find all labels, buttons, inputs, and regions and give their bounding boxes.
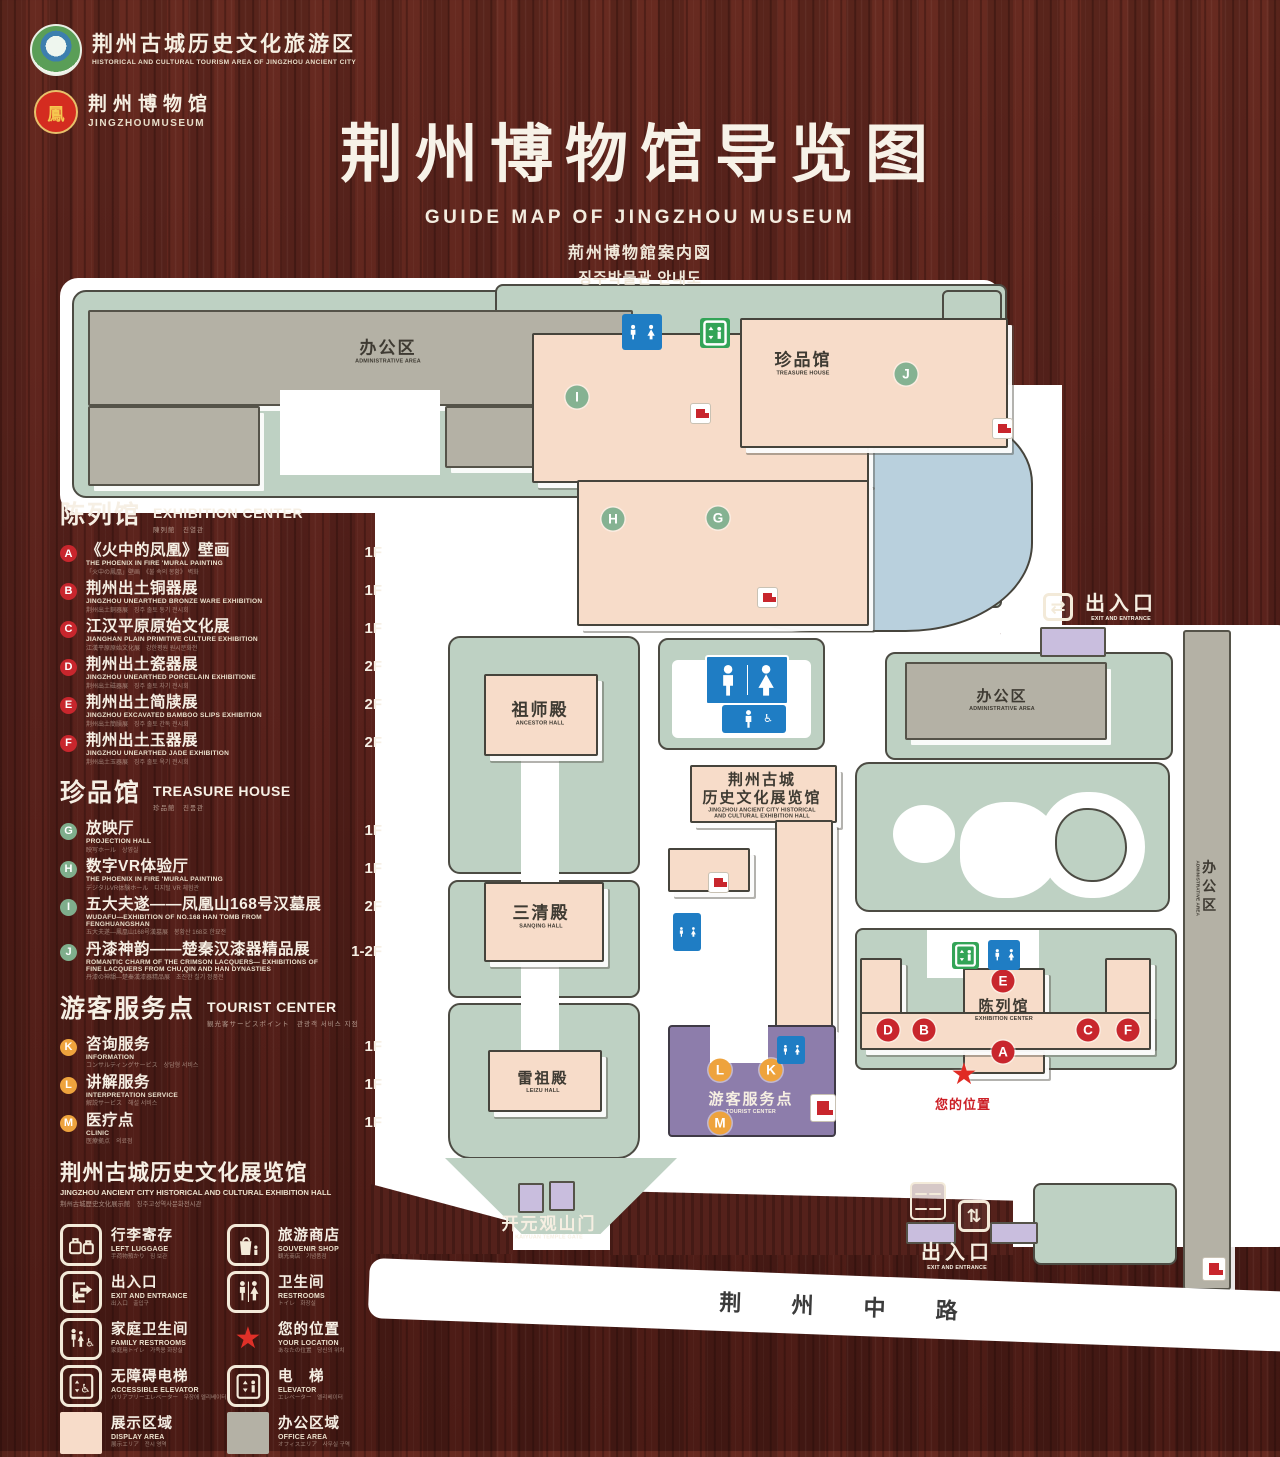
history-hall-note-zh: 荆州古城历史文化展览馆: [60, 1162, 382, 1186]
restroom-icon: [705, 655, 789, 705]
exhibit-item-J: J 丹漆神韵——楚秦汉漆器精品展 ROMANTIC CHARM OF THE C…: [60, 942, 382, 982]
legend-item: ♿无障碍电梯 ACCESSIBLE ELEVATOR バリアフリーエレベーター …: [60, 1363, 227, 1410]
elevator-icon: [952, 942, 979, 969]
map-label-line: ADMINISTRATIVE AREA: [969, 706, 1035, 712]
item-name-en: THE PHOENIX IN FIRE 'MURAL PAINTING: [86, 561, 321, 568]
item-letter-badge: I: [60, 899, 77, 916]
item-floor: 2F: [350, 733, 382, 751]
map-label-line: SANQING HALL: [513, 924, 570, 930]
legend-en: ACCESSIBLE ELEVATOR: [111, 1387, 226, 1394]
legend-grid: 行李寄存 LEFT LUGGAGE 手荷物預かり 짐 보관旅游商店 SOUVEN…: [60, 1222, 382, 1457]
item-name-zh: 咨询服务: [86, 1037, 350, 1053]
section-title-sub: 珍品館 진품관: [153, 802, 291, 812]
elevator-icon: [700, 318, 730, 348]
map-label-exit-ne: 出入口EXIT AND ENTRANCE: [1085, 592, 1157, 622]
item-letter-badge: M: [60, 1115, 77, 1132]
map-label-treasure: 珍品馆TREASURE HOUSE: [775, 351, 832, 378]
history-hall-note-en: JINGZHOU ANCIENT CITY HISTORICAL AND CUL…: [60, 1189, 382, 1197]
section-title-en: EXHIBITION CENTER: [153, 503, 303, 520]
legend-en: LEFT LUGGAGE: [111, 1246, 173, 1253]
item-name-sub: 荆州出土玉器展 징주 출토 옥기 전시회: [86, 760, 321, 766]
map-label-line: 荆州古城: [702, 772, 821, 790]
item-name-en: JIANGHAN PLAIN PRIMITIVE CULTURE EXHIBIT…: [86, 637, 321, 644]
legend-en: FAMILY RESTROOMS: [111, 1340, 189, 1347]
legend-item: 旅游商店 SOUVENIR SHOP 観光商店 기념품점: [227, 1222, 382, 1269]
tourism-area-emblem-icon: [30, 24, 82, 76]
section-title-zh: 陈列馆: [60, 503, 141, 528]
map-marker-I: I: [566, 386, 589, 409]
map-label-kaiyuan: 开元观山门KAIYUAN TEMPLE GATE: [502, 1215, 597, 1242]
map-label-line: 办公区: [969, 688, 1035, 706]
section-header-2: 游客服务点 TOURIST CENTER 観光客サービスポイント 관광객 서비스…: [60, 997, 382, 1028]
exit-entrance-icon: ⇅: [958, 1200, 990, 1232]
map-label-exhibition: 陈列馆EXHIBITION CENTER: [975, 998, 1033, 1022]
left-luggage-icon: [810, 1094, 836, 1122]
legend-sub: 家庭用トイレ 가족용 화장실: [111, 1349, 189, 1355]
map-label-history-hall: 荆州古城历史文化展览馆JINGZHOU ANCIENT CITY HISTORI…: [702, 772, 821, 821]
item-name-sub: 映写ホール 상영실: [86, 848, 321, 854]
legend-zh: 家庭卫生间: [111, 1323, 189, 1338]
exhibit-sections: 陈列馆 EXHIBITION CENTER 陳列館 진열관A 《火中的凤凰》壁画…: [60, 503, 382, 1146]
item-letter-badge: G: [60, 823, 77, 840]
exhibit-item-D: D 荆州出土瓷器展 JINGZHOU UNEARTHED PORCELAIN E…: [60, 657, 382, 690]
map-label-line: KAIYUAN TEMPLE GATE: [502, 1235, 597, 1241]
item-floor: 1F: [350, 543, 382, 561]
legend-sub: エレベーター 엘리베이터: [278, 1396, 343, 1402]
legend-zh: 旅游商店: [278, 1229, 340, 1244]
item-name-zh: 五大夫遂——凤凰山168号汉墓展: [86, 897, 350, 913]
legend-item: 卫生间 RESTROOMS トイレ 화장실: [227, 1269, 382, 1316]
item-name-zh: 《火中的凤凰》壁画: [86, 543, 350, 559]
item-name-en: JINGZHOU UNEARTHED BRONZE WARE EXHIBITIO…: [86, 599, 321, 606]
history-hall-east-wing: [775, 820, 833, 1032]
legend-sub: 展示エリア 전시 영역: [111, 1443, 173, 1449]
item-floor: 1F: [350, 1113, 382, 1131]
kaiyuan-gate-pillar-west: [518, 1183, 544, 1213]
exhibit-item-K: K 咨询服务 INFORMATION コンサルティングサービス 상담형 서비스 …: [60, 1037, 382, 1070]
map-label-line: 出入口: [921, 1241, 993, 1265]
office-area-swatch: [227, 1412, 269, 1454]
legend-zh: 行李寄存: [111, 1229, 173, 1244]
exhibit-item-F: F 荆州出土玉器展 JINGZHOU UNEARTHED JADE EXHIBI…: [60, 733, 382, 766]
phoenix-emblem-icon: 鳳: [34, 90, 78, 134]
item-name-zh: 荆州出土瓷器展: [86, 657, 350, 673]
treasure-house-east: [740, 318, 1008, 448]
item-name-en: JINGZHOU EXCAVATED BAMBOO SLIPS EXHIBITI…: [86, 713, 321, 720]
map-marker-J: J: [895, 363, 918, 386]
item-name-en: ROMANTIC CHARM OF THE CRIMSON LACQUERS— …: [86, 960, 321, 974]
gate-building-northeast: [1040, 627, 1106, 657]
accessible-elevator-icon: ♿: [60, 1365, 102, 1407]
item-letter-badge: J: [60, 944, 77, 961]
item-letter-badge: L: [60, 1077, 77, 1094]
red-facility-icon: [992, 418, 1013, 439]
item-name-zh: 丹漆神韵——楚秦汉漆器精品展: [86, 942, 350, 958]
map-marker-E: E: [992, 970, 1015, 993]
item-name-sub: 荆州出土簡牘展 징주 출토 간독 전시회: [86, 722, 321, 728]
map-label-line: EXIT AND ENTRANCE: [921, 1265, 993, 1271]
legend-column: 陈列馆 EXHIBITION CENTER 陳列館 진열관A 《火中的凤凰》壁画…: [60, 503, 382, 1457]
legend-en: SOUVENIR SHOP: [278, 1246, 340, 1253]
green-southeast: [1033, 1183, 1177, 1265]
your-location-star-icon: ★: [951, 1060, 978, 1090]
item-letter-badge: B: [60, 583, 77, 600]
tourism-area-logo: 荆州古城历史文化旅游区 HISTORICAL AND CULTURAL TOUR…: [30, 24, 356, 76]
map-marker-G: G: [707, 507, 730, 530]
tourism-area-subtitle: HISTORICAL AND CULTURAL TOURISM AREA OF …: [92, 59, 356, 66]
page-title-ja: 荊州博物館案内図: [0, 239, 1280, 263]
map-label-line: EXIT AND ENTRANCE: [1085, 616, 1157, 622]
exhibit-item-H: H 数字VR体验厅 THE PHOENIX IN FIRE 'MURAL PAI…: [60, 859, 382, 892]
map-label-line: ADMINISTRATIVE AREA: [1195, 860, 1200, 917]
item-name-en: PROJECTION HALL: [86, 839, 321, 846]
item-name-en: CLINIC: [86, 1131, 321, 1138]
legend-item: ★您的位置 YOUR LOCATION あなたの位置 당신의 위치: [227, 1316, 382, 1363]
legend-en: YOUR LOCATION: [278, 1340, 344, 1347]
map-label-line: ANCESTOR HALL: [512, 721, 569, 727]
map-label-leizu: 雷祖殿LEIZU HALL: [517, 1070, 568, 1094]
item-floor: 1F: [350, 1037, 382, 1055]
tourist-center-notch: [710, 1025, 768, 1063]
your-location-icon: ★: [227, 1318, 269, 1360]
item-floor: 1F: [350, 581, 382, 599]
map-marker-M: M: [709, 1112, 732, 1135]
road-label: 荆 州 中 路: [697, 1284, 980, 1326]
family-restroom-icon: [910, 1182, 946, 1220]
legend-zh: 出入口: [111, 1276, 188, 1291]
map-label-your-location: 您的位置: [935, 1097, 991, 1113]
item-name-sub: デジタルVR体験ホール 디지털 VR 체험관: [86, 886, 321, 892]
legend-en: ELEVATOR: [278, 1387, 343, 1394]
red-facility-icon: [757, 587, 778, 608]
legend-sub: オフィスエリア 사무실 구역: [278, 1443, 350, 1449]
legend-sub: 観光商店 기념품점: [278, 1255, 340, 1261]
item-letter-badge: D: [60, 659, 77, 676]
map-label-line: 出入口: [1085, 592, 1157, 616]
map-marker-C: C: [1077, 1019, 1100, 1042]
elevator-icon: [227, 1365, 269, 1407]
legend-item: 行李寄存 LEFT LUGGAGE 手荷物預かり 짐 보관: [60, 1222, 227, 1269]
section-header-0: 陈列馆 EXHIBITION CENTER 陳列館 진열관: [60, 503, 382, 534]
legend-sub: 出入口 출입구: [111, 1302, 188, 1308]
museum-logo: 鳳 荆州博物馆 JINGZHOUMUSEUM: [34, 90, 213, 134]
phoenix-glyph: 鳳: [48, 100, 65, 125]
exhibit-item-E: E 荆州出土简牍展 JINGZHOU EXCAVATED BAMBOO SLIP…: [60, 695, 382, 728]
tourism-area-title: 荆州古城历史文化旅游区: [92, 34, 356, 56]
item-name-sub: 五大夫遂—鳳凰山168号漢墓展 봉황산 168호 한묘전: [86, 930, 321, 936]
restrooms-icon: [227, 1271, 269, 1313]
item-floor: 1-2F: [350, 942, 382, 960]
exhibit-item-B: B 荆州出土铜器展 JINGZHOU UNEARTHED BRONZE WARE…: [60, 581, 382, 614]
restroom-icon: [673, 913, 701, 951]
item-name-sub: 丹漆の神韻—楚秦漢漆器精品展 초진한 칠기 정품전: [86, 975, 321, 981]
legend-zh: 电 梯: [278, 1370, 343, 1385]
legend-sub: あなたの位置 당신의 위치: [278, 1349, 344, 1355]
history-hall-note: 荆州古城历史文化展览馆 JINGZHOU ANCIENT CITY HISTOR…: [60, 1162, 382, 1208]
map-label-line: AND CULTURAL EXHIBITION HALL: [702, 814, 821, 820]
item-name-sub: 解説サービス 해설 서비스: [86, 1101, 321, 1107]
item-name-en: JINGZHOU UNEARTHED JADE EXHIBITION: [86, 751, 321, 758]
item-name-zh: 荆州出土玉器展: [86, 733, 350, 749]
map-marker-A: A: [992, 1041, 1015, 1064]
souvenir-shop-icon: [227, 1224, 269, 1266]
museum-guide-sign: { "header": { "logo1": {"title": "荆州古城历史…: [0, 0, 1280, 1451]
legend-item: 展示区域 DISPLAY AREA 展示エリア 전시 영역: [60, 1410, 227, 1457]
red-facility-icon: [708, 872, 729, 893]
legend-zh: 您的位置: [278, 1323, 344, 1338]
item-name-sub: 荆州出土銅器展 징주 출토 동기 전시회: [86, 608, 321, 614]
exhibit-item-A: A 《火中的凤凰》壁画 THE PHOENIX IN FIRE 'MURAL P…: [60, 543, 382, 576]
map-label-line: 三清殿: [513, 904, 570, 924]
map-label-line: 办公区: [355, 339, 421, 359]
svg-text:♿: ♿: [80, 1381, 91, 1395]
legend-zh: 无障碍电梯: [111, 1370, 226, 1385]
item-name-zh: 放映厅: [86, 821, 350, 837]
legend-en: DISPLAY AREA: [111, 1434, 173, 1441]
item-name-sub: 荆州出土磁器展 징주 출토 자기 전시회: [86, 684, 321, 690]
exhibit-item-I: I 五大夫遂——凤凰山168号汉墓展 WUDAFU—EXHIBITION OF …: [60, 897, 382, 937]
svg-text:♿: ♿: [85, 1337, 95, 1349]
left-luggage-icon: [60, 1224, 102, 1266]
map-label-line: 陈列馆: [975, 998, 1033, 1016]
map-label-line: 办公区: [1200, 860, 1217, 917]
legend-en: EXIT AND ENTRANCE: [111, 1293, 188, 1300]
section-title-sub: 陳列館 진열관: [153, 524, 303, 534]
map-marker-F: F: [1117, 1019, 1140, 1042]
item-name-zh: 荆州出土铜器展: [86, 581, 350, 597]
item-name-zh: 数字VR体验厅: [86, 859, 350, 875]
item-name-sub: 江漢平原原始文化展 강한평원 원시문화전: [86, 646, 321, 652]
item-name-en: JINGZHOU UNEARTHED PORCELAIN EXHIBITIONE: [86, 675, 321, 682]
item-name-zh: 荆州出土简牍展: [86, 695, 350, 711]
display-area-swatch: [60, 1412, 102, 1454]
section-title-zh: 珍品馆: [60, 781, 141, 806]
map-label-line: TREASURE HOUSE: [775, 371, 832, 377]
pond-west: [893, 805, 955, 863]
item-floor: 1F: [350, 1075, 382, 1093]
map-label-ancestor: 祖师殿ANCESTOR HALL: [512, 701, 569, 728]
item-name-en: INTERPRETATION SERVICE: [86, 1093, 321, 1100]
exhibit-item-M: M 医疗点 CLINIC 医療拠点 의료점 1F: [60, 1113, 382, 1146]
exit-entrance-icon: [60, 1271, 102, 1313]
map-label-line: EXHIBITION CENTER: [975, 1016, 1033, 1022]
map-label-admin-strip: 办公区ADMINISTRATIVE AREA: [1195, 860, 1217, 917]
map-label-line: ADMINISTRATIVE AREA: [355, 359, 421, 365]
map-label-line: 您的位置: [935, 1097, 991, 1113]
item-name-en: WUDAFU—EXHIBITION OF NO.168 HAN TOMB FRO…: [86, 915, 321, 929]
legend-item: 办公区域 OFFICE AREA オフィスエリア 사무실 구역: [227, 1410, 382, 1457]
section-title-en: TOURIST CENTER: [207, 997, 358, 1014]
legend-item: 电 梯 ELEVATOR エレベーター 엘리베이터: [227, 1363, 382, 1410]
map-marker-H: H: [602, 508, 625, 531]
item-floor: 2F: [350, 897, 382, 915]
item-floor: 1F: [350, 859, 382, 877]
item-letter-badge: H: [60, 861, 77, 878]
map-label-line: LEIZU HALL: [517, 1088, 568, 1094]
item-letter-badge: C: [60, 621, 77, 638]
legend-sub: 手荷物預かり 짐 보관: [111, 1255, 173, 1261]
section-title-sub: 観光客サービスポイント 관광객 서비스 지점: [207, 1018, 358, 1028]
item-name-en: THE PHOENIX IN FIRE 'MURAL PAINTING: [86, 877, 321, 884]
kaiyuan-gate-pillar-east: [549, 1181, 575, 1211]
restroom-icon: [622, 314, 662, 350]
map-label-admin-e: 办公区ADMINISTRATIVE AREA: [969, 688, 1035, 712]
museum-logo-title: 荆州博物馆: [88, 95, 213, 115]
item-letter-badge: K: [60, 1039, 77, 1056]
item-floor: 1F: [350, 619, 382, 637]
item-floor: 2F: [350, 695, 382, 713]
map-marker-B: B: [913, 1019, 936, 1042]
treasure-house-south: [577, 480, 869, 626]
map-label-admin-nw: 办公区ADMINISTRATIVE AREA: [355, 339, 421, 366]
item-name-sub: コンサルティングサービス 상담형 서비스: [86, 1063, 321, 1069]
pond-east-island: [1055, 808, 1127, 882]
jingzhou-middle-road: 荆 州 中 路: [368, 1258, 1280, 1352]
page-title-ko: 징주박물관 안내도: [0, 267, 1280, 288]
courtyard-northwest: [280, 390, 440, 475]
legend-zh: 卫生间: [278, 1276, 325, 1291]
legend-en: RESTROOMS: [278, 1293, 325, 1300]
legend-sub: バリアフリーエレベーター 무장애 엘리베이터: [111, 1396, 226, 1402]
accessible-restroom-icon: ♿: [722, 705, 786, 733]
restroom-icon: [988, 940, 1020, 970]
museum-logo-subtitle: JINGZHOUMUSEUM: [88, 118, 213, 129]
item-name-sub: 「火中の鳳凰」壁画 《불 속의 봉황》 벽화: [86, 570, 321, 576]
legend-item: 出入口 EXIT AND ENTRANCE 出入口 출입구: [60, 1269, 227, 1316]
map-label-line: 雷祖殿: [517, 1070, 568, 1088]
map-label-line: 祖师殿: [512, 701, 569, 721]
map-label-exit-s: 出入口EXIT AND ENTRANCE: [921, 1241, 993, 1271]
office-strip-east: [1183, 630, 1231, 1290]
legend-zh: 展示区域: [111, 1417, 173, 1432]
restroom-icon: [777, 1036, 805, 1064]
item-name-zh: 医疗点: [86, 1113, 350, 1129]
family-restrooms-icon: ♿: [60, 1318, 102, 1360]
page-title-en: GUIDE MAP OF JINGZHOU MUSEUM: [0, 207, 1280, 229]
gate-building-south-east: [990, 1222, 1038, 1244]
red-facility-icon: [690, 403, 711, 424]
legend-zh: 办公区域: [278, 1417, 350, 1432]
item-name-sub: 医療拠点 의료점: [86, 1139, 321, 1145]
item-name-zh: 讲解服务: [86, 1075, 350, 1091]
history-hall-note-sub: 荆州古城歴史文化展示館 징주고성역사문화전시관: [60, 1201, 382, 1208]
exit-entrance-icon: ⇄: [1043, 593, 1073, 621]
item-letter-badge: E: [60, 697, 77, 714]
legend-en: OFFICE AREA: [278, 1434, 350, 1441]
red-facility-icon: [1202, 1257, 1226, 1281]
map-label-line: 游客服务点: [708, 1091, 793, 1109]
map-label-line: 珍品馆: [775, 351, 832, 371]
item-letter-badge: A: [60, 545, 77, 562]
admin-nw-building-b: [88, 406, 260, 486]
map-marker-D: D: [877, 1019, 900, 1042]
item-floor: 1F: [350, 821, 382, 839]
item-floor: 2F: [350, 657, 382, 675]
section-title-en: TREASURE HOUSE: [153, 781, 291, 798]
item-letter-badge: F: [60, 735, 77, 752]
exhibit-item-L: L 讲解服务 INTERPRETATION SERVICE 解説サービス 해설 …: [60, 1075, 382, 1108]
map-label-sanqing: 三清殿SANQING HALL: [513, 904, 570, 931]
map-label-line: 开元观山门: [502, 1215, 597, 1235]
section-title-zh: 游客服务点: [60, 997, 195, 1022]
map-marker-L: L: [709, 1059, 732, 1082]
item-name-en: INFORMATION: [86, 1055, 321, 1062]
exhibit-item-C: C 江汉平原原始文化展 JIANGHAN PLAIN PRIMITIVE CUL…: [60, 619, 382, 652]
item-name-zh: 江汉平原原始文化展: [86, 619, 350, 635]
section-header-1: 珍品馆 TREASURE HOUSE 珍品館 진품관: [60, 781, 382, 812]
legend-sub: トイレ 화장실: [278, 1302, 325, 1308]
exhibit-item-G: G 放映厅 PROJECTION HALL 映写ホール 상영실 1F: [60, 821, 382, 854]
map-label-line: 历史文化展览馆: [702, 790, 821, 808]
legend-item: ♿家庭卫生间 FAMILY RESTROOMS 家庭用トイレ 가족용 화장실: [60, 1316, 227, 1363]
